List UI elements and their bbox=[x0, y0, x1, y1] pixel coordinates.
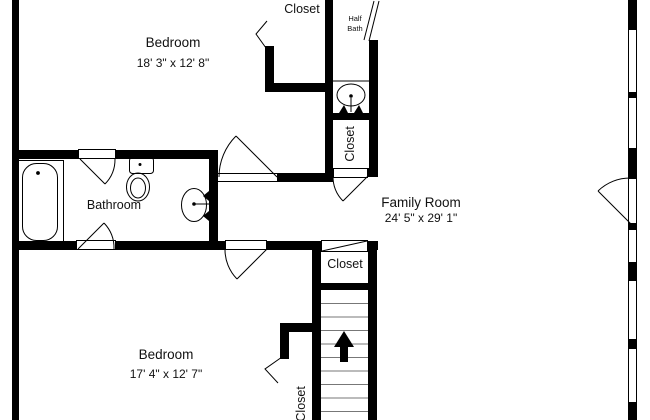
bathroom-label: Bathroom bbox=[54, 199, 174, 213]
bathroom-sink bbox=[182, 189, 210, 222]
half-bath-label-line1: Half bbox=[337, 15, 373, 23]
closet-hall-label: Closet bbox=[344, 114, 358, 174]
door-panel bbox=[226, 241, 267, 250]
window bbox=[629, 30, 637, 93]
exterior-wall-right-segment bbox=[628, 403, 637, 420]
fixtures bbox=[19, 81, 370, 244]
half-bath-sink bbox=[333, 81, 369, 113]
window bbox=[629, 281, 637, 340]
closet-stairs-divider-wall bbox=[312, 283, 377, 290]
family-room-dimensions: 24' 5" x 29' 1" bbox=[351, 212, 491, 225]
closet-bedroom-bottom-west-wall bbox=[280, 323, 289, 359]
closet-landing-label: Closet bbox=[315, 258, 375, 272]
half-bath-west-wall bbox=[325, 0, 333, 177]
floor-plan-canvas: Closet Half Bath Bedroom 18' 3" x 12' 8"… bbox=[0, 0, 650, 420]
bifold-door bbox=[256, 21, 267, 48]
door-arc bbox=[219, 136, 277, 177]
door-arc bbox=[598, 178, 631, 224]
hall-north-wall bbox=[277, 173, 333, 182]
family-room-label: Family Room bbox=[351, 196, 491, 211]
toilet bbox=[127, 158, 154, 202]
bathroom-north-wall bbox=[12, 150, 78, 159]
window bbox=[629, 230, 637, 263]
door-arc bbox=[80, 159, 115, 184]
bedroom-top-dimensions: 18' 3" x 12' 8" bbox=[113, 57, 233, 70]
exterior-wall-left bbox=[12, 0, 19, 420]
bathroom-east-wall bbox=[209, 150, 218, 250]
bedroom-bottom-dimensions: 17' 4" x 12' 7" bbox=[106, 368, 226, 381]
exterior-wall-right-segment bbox=[628, 224, 637, 229]
closet-top-south-wall bbox=[265, 83, 333, 92]
exterior-wall-right-segment bbox=[628, 263, 637, 280]
closet-top-label: Closet bbox=[272, 3, 332, 17]
exterior-wall-right-segment bbox=[628, 149, 637, 178]
bifold-door bbox=[265, 357, 282, 383]
exterior-wall-right-segment bbox=[628, 340, 637, 348]
closet-hall-south-wall bbox=[368, 168, 378, 177]
half-bath-east-wall bbox=[369, 40, 378, 177]
closet-hall-south-wall bbox=[325, 168, 333, 177]
stairs bbox=[321, 304, 368, 412]
closet-bedroom-bottom-label: Closet bbox=[295, 374, 309, 420]
bathroom-south-wall bbox=[12, 241, 78, 250]
half-bath-label-line2: Bath bbox=[337, 25, 373, 33]
door-opening bbox=[218, 174, 277, 182]
door-panel bbox=[629, 179, 637, 224]
bedroom-top-label: Bedroom bbox=[113, 36, 233, 51]
door-arc bbox=[225, 249, 267, 279]
door-panel bbox=[79, 150, 116, 159]
window bbox=[629, 98, 637, 149]
bathroom-south-wall bbox=[116, 241, 225, 250]
exterior-wall-right-segment bbox=[628, 0, 637, 29]
bedroom-bottom-label: Bedroom bbox=[106, 348, 226, 363]
window bbox=[629, 349, 637, 403]
